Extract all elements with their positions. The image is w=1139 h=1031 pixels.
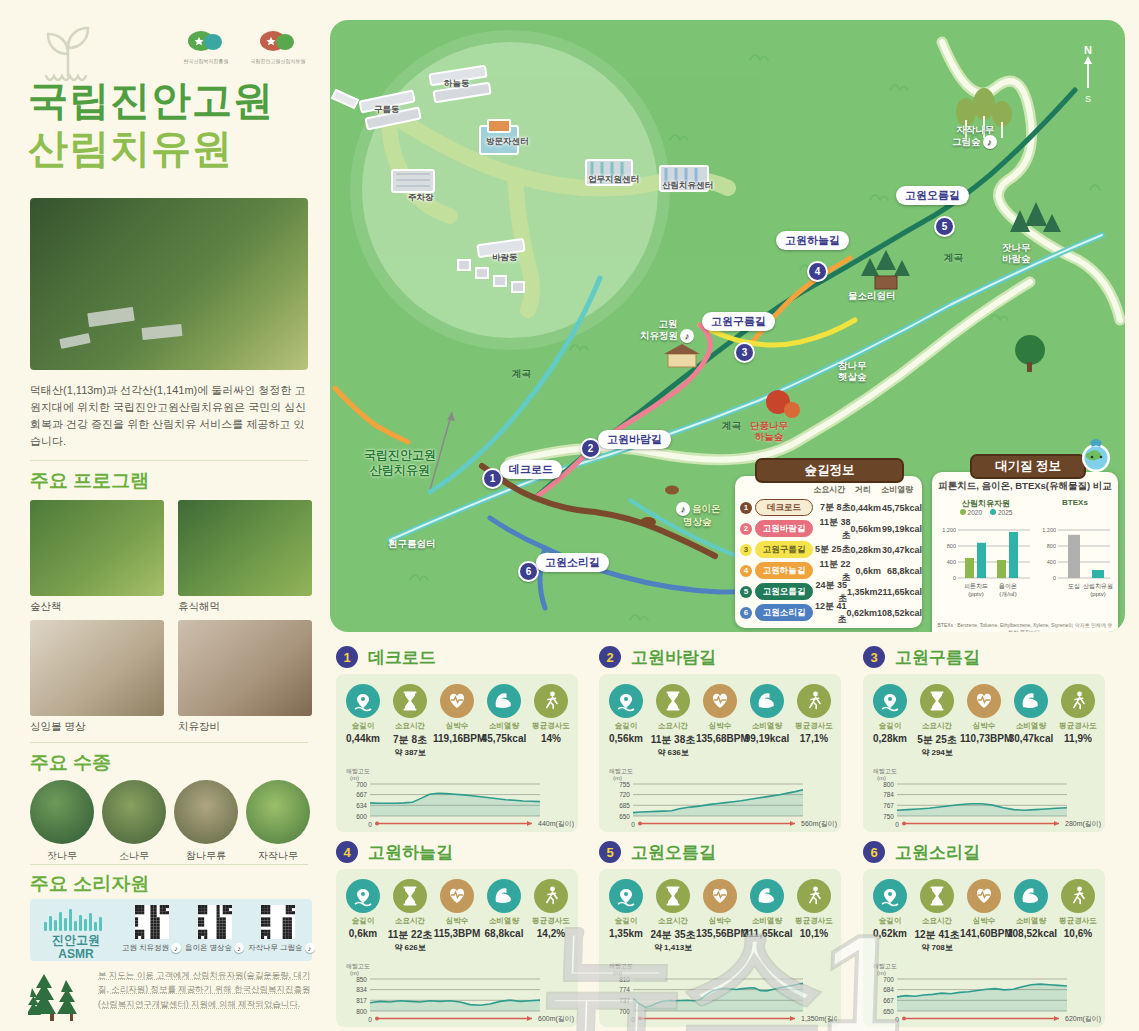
svg-text:700: 700 bbox=[356, 781, 367, 788]
slope-icon bbox=[797, 684, 831, 718]
stat-label: 심박수 bbox=[433, 916, 481, 926]
elevation-chart: 해발고도(m)7006676346000440m(길이) bbox=[340, 764, 574, 830]
trail-length-icon bbox=[873, 684, 907, 718]
poster-title-line2: 산림치유원 bbox=[28, 126, 233, 170]
col-kcal: 소비열량 bbox=[878, 484, 916, 495]
stat-trail-length: 숲길이0,44km bbox=[339, 684, 387, 744]
stat-duration: 소요시간11분 22초약 626보 bbox=[386, 879, 434, 953]
trail-length-icon bbox=[346, 879, 380, 913]
svg-text:피톤치드: 피톤치드 bbox=[964, 583, 988, 589]
stat-heart-rate: 심박수115,3BPM bbox=[433, 879, 481, 939]
steps-value: 약 626보 bbox=[386, 942, 434, 953]
compass: N S bbox=[1084, 44, 1092, 104]
svg-text:784: 784 bbox=[883, 791, 894, 798]
svg-text:800: 800 bbox=[947, 543, 956, 549]
aq-forest-title: 산림치유자원 bbox=[938, 498, 1034, 509]
row-number-badge: 6 bbox=[740, 607, 752, 619]
time-value: 7분 8초 bbox=[813, 501, 850, 514]
map-place-label: 구름동 bbox=[374, 104, 400, 114]
svg-text:해발고도: 해발고도 bbox=[609, 768, 633, 774]
place-text: 물소리쉼터 bbox=[848, 290, 896, 301]
stat-label: 숲길이 bbox=[866, 721, 914, 731]
stat-label: 소요시간 bbox=[386, 916, 434, 926]
svg-text:해발고도: 해발고도 bbox=[346, 963, 370, 969]
species-label: 참나무류 bbox=[174, 849, 238, 863]
heart-rate-icon bbox=[703, 684, 737, 718]
air-quality-footnote: BTEXs : Benzene, Toluene, Ethylbenzene, … bbox=[937, 622, 1113, 632]
stat-slope: 평균경사도10,6% bbox=[1054, 879, 1102, 939]
legend-item: 2020 bbox=[960, 509, 982, 516]
logo-kofowi: 한국산림복지진흥원 bbox=[175, 28, 237, 64]
sound-bars-icon bbox=[44, 907, 108, 933]
slope-icon bbox=[1061, 684, 1095, 718]
stat-trail-length: 숲길이0,28km bbox=[866, 684, 914, 744]
footer-note: 본 지도는 이용 고객에게 산림치유자원(숲길운동량, 대기질, 소리자원) 정… bbox=[98, 968, 312, 1011]
divider bbox=[30, 742, 308, 743]
air-quality-subtitle: 피톤치드, 음이온, BTEXs(유해물질) 비교 bbox=[932, 480, 1118, 493]
steps-value: 약 636보 bbox=[649, 747, 697, 758]
logo-kofowi-label: 한국산림복지진흥원 bbox=[175, 58, 237, 64]
qr-item: 자작나무 그림숲♪ bbox=[248, 905, 308, 953]
trail-pill-4: 고원하늘길 bbox=[776, 231, 849, 250]
trail-info-panel: 소요시간 거리 소비열량 1데크로드7분 8초0,44km45,75kcal2고… bbox=[735, 476, 922, 628]
svg-text:634: 634 bbox=[356, 802, 367, 809]
divider bbox=[30, 460, 308, 461]
qr-label: 음이온 명상숲♪ bbox=[185, 943, 245, 953]
program-item: 숲산책 bbox=[30, 500, 164, 614]
card-panel: 숲길이0,56km소요시간11분 38초약 636보심박수135,68BPM소비… bbox=[599, 674, 841, 832]
svg-text:(pptv): (pptv) bbox=[1090, 591, 1105, 597]
stat-value: 110,73BPM bbox=[960, 733, 1008, 744]
stat-label: 평균경사도 bbox=[527, 721, 575, 731]
music-note-icon: ♪ bbox=[983, 135, 997, 149]
card-number-badge: 6 bbox=[863, 841, 885, 863]
stat-value: 135,68BPM bbox=[696, 733, 744, 744]
trail-pill-5: 고원오름길 bbox=[896, 186, 969, 205]
map-place-label: 하늘동 bbox=[444, 78, 470, 88]
stat-label: 소비열량 bbox=[1007, 916, 1055, 926]
map-place-label: 자작나무 그림숲♪ bbox=[952, 124, 999, 149]
map-place-label: 참나무 햇살숲 bbox=[838, 360, 867, 383]
svg-text:0: 0 bbox=[631, 821, 635, 828]
card-title: 고원소리길 bbox=[895, 841, 980, 864]
species-label: 잣나무 bbox=[30, 849, 94, 863]
stat-value: 45,75kcal bbox=[480, 733, 528, 744]
stat-label: 숲길이 bbox=[339, 721, 387, 731]
card-panel: 숲길이0,44km소요시간7분 8초약 387보심박수119,16BPM소비열량… bbox=[336, 674, 578, 832]
program-photo bbox=[178, 500, 312, 596]
species-row: 잣나무소나무참나무류자작나무 bbox=[30, 780, 312, 863]
music-note-icon: ♪ bbox=[676, 502, 690, 516]
stat-value: 68,8kcal bbox=[480, 928, 528, 939]
program-item: 치유장비 bbox=[178, 620, 312, 734]
programs-heading: 주요 프로그램 bbox=[30, 468, 149, 494]
trail-pill-6: 고원소리길 bbox=[536, 553, 609, 572]
place-text: 단풍나무 하늘숲 bbox=[750, 420, 788, 442]
svg-text:음이온: 음이온 bbox=[999, 583, 1017, 589]
program-label: 싱잉볼 명상 bbox=[30, 720, 164, 734]
stat-value: 0,6km bbox=[339, 928, 387, 939]
stat-value: 7분 8초 bbox=[386, 733, 434, 747]
svg-text:750: 750 bbox=[883, 813, 894, 820]
svg-text:440m(길이): 440m(길이) bbox=[538, 820, 574, 828]
asmr-label: 진안고원ASMR bbox=[38, 933, 114, 962]
stat-value: 30,47kcal bbox=[1007, 733, 1055, 744]
row-number-badge: 4 bbox=[740, 565, 752, 577]
place-text: 계곡 bbox=[944, 252, 963, 263]
card-title: 데크로드 bbox=[368, 646, 436, 669]
stat-calorie: 소비열량45,75kcal bbox=[480, 684, 528, 744]
trail-map: N S 1데크로드2고원바람길3고원구름길4고원하늘길5고원오름길6고원소리길계… bbox=[330, 20, 1125, 632]
stat-slope: 평균경사도17,1% bbox=[790, 684, 838, 744]
qr-code bbox=[261, 905, 295, 939]
card-title: 고원오름길 bbox=[631, 841, 716, 864]
program-item: 휴식해먹 bbox=[178, 500, 312, 614]
distance-value: 0,6km bbox=[851, 566, 881, 576]
asmr-box: 진안고원ASMR 고원 치유정원♪음이온 명상숲♪자작나무 그림숲♪ bbox=[30, 899, 312, 961]
place-text: 잣나무 바람숲 bbox=[1002, 242, 1031, 264]
site-label: 국립진안고원산림치유원 bbox=[358, 448, 442, 478]
svg-text:0: 0 bbox=[895, 821, 899, 828]
qr-code bbox=[135, 905, 169, 939]
svg-text:667: 667 bbox=[356, 791, 367, 798]
music-note-icon: ♪ bbox=[305, 943, 315, 953]
duration-icon bbox=[920, 684, 954, 718]
map-place-label: 흰구름쉼터 bbox=[388, 538, 436, 549]
logo-center-label: 국립진안고원산림치유원 bbox=[245, 58, 311, 64]
stat-duration: 소요시간5분 25초약 294보 bbox=[913, 684, 961, 758]
distance-value: 0,28km bbox=[850, 545, 881, 555]
elevation-chart: 해발고도(m)7006846676500620m(길이) bbox=[867, 959, 1101, 1025]
svg-text:817: 817 bbox=[356, 997, 367, 1004]
map-place-label: 고원 치유정원♪ bbox=[640, 318, 696, 343]
trail-info-row: 6고원소리길12분 41초0,62km108,52kcal bbox=[735, 602, 922, 623]
heart-rate-icon bbox=[440, 879, 474, 913]
program-item: 싱잉볼 명상 bbox=[30, 620, 164, 734]
qr-code bbox=[198, 905, 232, 939]
calorie-icon bbox=[487, 684, 521, 718]
place-text: 고원 치유정원 bbox=[640, 318, 678, 341]
air-quality-panel: 피톤치드, 음이온, BTEXs(유해물질) 비교 산림치유자원 2020202… bbox=[932, 472, 1118, 632]
trail-name-badge: 고원소리길 bbox=[755, 604, 813, 621]
place-text: 업무지원센터 bbox=[588, 174, 639, 184]
stat-calorie: 소비열량108,52kcal bbox=[1007, 879, 1055, 939]
stat-calorie: 소비열량30,47kcal bbox=[1007, 684, 1055, 744]
svg-text:(pptv): (pptv) bbox=[968, 591, 983, 597]
stat-value: 0,28km bbox=[866, 733, 914, 744]
map-place-label: 계곡 bbox=[512, 368, 531, 379]
qr-item: 고원 치유정원♪ bbox=[122, 905, 182, 953]
program-label: 숲산책 bbox=[30, 600, 164, 614]
poster: 한국산림복지진흥원 국립진안고원산림치유원 국립진안고원 산림치유원 덕태산(1… bbox=[0, 0, 1139, 1031]
card-title: 고원구름길 bbox=[895, 646, 980, 669]
music-note-icon: ♪ bbox=[171, 943, 181, 953]
place-text: 바람동 bbox=[492, 252, 518, 262]
program-photo bbox=[178, 620, 312, 716]
calorie-icon bbox=[750, 684, 784, 718]
stat-value: 119,16BPM bbox=[433, 733, 481, 744]
species-photo bbox=[246, 780, 310, 844]
stat-value: 141,60BPM bbox=[960, 928, 1008, 939]
svg-text:600: 600 bbox=[356, 813, 367, 820]
heart-rate-icon bbox=[967, 879, 1001, 913]
svg-text:산림치유원: 산림치유원 bbox=[1083, 583, 1113, 589]
stat-label: 심박수 bbox=[696, 721, 744, 731]
trail-info-title: 숲길정보 bbox=[755, 458, 904, 483]
stat-value: 0,44km bbox=[339, 733, 387, 744]
trail-pill-3: 고원구름길 bbox=[702, 312, 775, 331]
music-note-icon: ♪ bbox=[680, 329, 694, 343]
calorie-value: 45,75kcal bbox=[881, 503, 922, 513]
svg-text:도심: 도심 bbox=[1068, 583, 1080, 589]
map-place-label: 단풍나무 하늘숲 bbox=[750, 420, 788, 443]
trail-pill-2: 고원바람길 bbox=[598, 430, 671, 449]
species-item: 참나무류 bbox=[174, 780, 238, 863]
logo-kofowi-icon bbox=[175, 28, 237, 54]
species-photo bbox=[30, 780, 94, 844]
time-value: 5분 25초 bbox=[813, 543, 850, 556]
poster-title-line1: 국립진안고원 bbox=[28, 78, 274, 122]
svg-text:1,200: 1,200 bbox=[942, 527, 956, 533]
music-note-icon: ♪ bbox=[234, 943, 244, 953]
slope-icon bbox=[1061, 879, 1095, 913]
svg-text:N: N bbox=[1084, 44, 1092, 56]
svg-text:755: 755 bbox=[619, 781, 630, 788]
place-text: 방문자센터 bbox=[486, 136, 529, 146]
intro-text: 덕태산(1,113m)과 선각산(1,141m)에 둘러싸인 청정한 고원지대에… bbox=[30, 382, 312, 450]
row-number-badge: 2 bbox=[740, 523, 752, 535]
card-title: 고원바람길 bbox=[631, 646, 716, 669]
col-dist: 거리 bbox=[847, 484, 877, 495]
svg-text:800: 800 bbox=[1047, 543, 1056, 549]
duration-icon bbox=[920, 879, 954, 913]
place-text: 하늘동 bbox=[444, 78, 470, 88]
elevation-chart: 해발고도(m)8007847677500280m(길이) bbox=[867, 764, 1101, 830]
steps-value: 약 708보 bbox=[913, 942, 961, 953]
stat-duration: 소요시간7분 8초약 387보 bbox=[386, 684, 434, 758]
stat-label: 소요시간 bbox=[649, 721, 697, 731]
stat-label: 숲길이 bbox=[602, 721, 650, 731]
card-number-badge: 4 bbox=[336, 841, 358, 863]
distance-value: 0,62km bbox=[846, 608, 877, 618]
map-place-label: 업무지원센터 bbox=[588, 174, 639, 184]
time-value: 12분 41초 bbox=[813, 600, 846, 626]
svg-text:280m(길이): 280m(길이) bbox=[1065, 820, 1101, 828]
stat-value: 10,6% bbox=[1054, 928, 1102, 939]
trail-marker-5: 5 bbox=[934, 216, 955, 237]
program-photo bbox=[30, 500, 164, 596]
card-number-badge: 1 bbox=[336, 646, 358, 668]
sounds-heading: 주요 소리자원 bbox=[30, 871, 149, 897]
duration-icon bbox=[656, 684, 690, 718]
svg-text:800: 800 bbox=[356, 1008, 367, 1015]
divider bbox=[30, 864, 308, 865]
aq-legend: 20202025 bbox=[938, 509, 1034, 516]
stat-value: 108,52kcal bbox=[1007, 928, 1055, 939]
duration-icon bbox=[393, 684, 427, 718]
svg-text:S: S bbox=[1085, 94, 1091, 104]
stat-label: 소요시간 bbox=[913, 916, 961, 926]
legend-item: 2025 bbox=[990, 509, 1012, 516]
aq-btex-title: BTEXs bbox=[1036, 498, 1114, 507]
stat-label: 평균경사도 bbox=[790, 721, 838, 731]
stat-slope: 평균경사도14% bbox=[527, 684, 575, 744]
card-number-badge: 2 bbox=[599, 646, 621, 668]
trail-length-icon bbox=[609, 684, 643, 718]
stat-value: 12분 41초 bbox=[913, 928, 961, 942]
trail-info-header-row: 소요시간 거리 소비열량 bbox=[735, 484, 916, 495]
svg-text:0: 0 bbox=[1053, 575, 1056, 581]
stat-label: 평균경사도 bbox=[1054, 916, 1102, 926]
row-number-badge: 3 bbox=[740, 544, 752, 556]
stat-label: 숲길이 bbox=[339, 916, 387, 926]
calorie-value: 30,47kcal bbox=[881, 545, 922, 555]
distance-value: 1,35km bbox=[847, 587, 878, 597]
aq-chart-forest: 산림치유자원 20202025 1,2008004000피톤치드(pptv)음이… bbox=[938, 498, 1034, 616]
svg-text:400: 400 bbox=[947, 559, 956, 565]
map-place-label: 방문자센터 bbox=[486, 136, 529, 146]
stat-label: 소요시간 bbox=[913, 721, 961, 731]
aq-chart-btex: BTEXs 1,2008004000도심산림치유원(pptv) bbox=[1036, 498, 1114, 616]
svg-text:834: 834 bbox=[356, 986, 367, 993]
calorie-value: 108,52kcal bbox=[877, 608, 922, 618]
earth-mascot-icon bbox=[1076, 436, 1116, 480]
svg-text:해발고도: 해발고도 bbox=[346, 768, 370, 774]
stat-label: 심박수 bbox=[960, 916, 1008, 926]
time-value: 11분 38초 bbox=[813, 516, 850, 542]
stat-label: 평균경사도 bbox=[1054, 721, 1102, 731]
qr-row: 고원 치유정원♪음이온 명상숲♪자작나무 그림숲♪ bbox=[122, 905, 308, 953]
stat-heart-rate: 심박수119,16BPM bbox=[433, 684, 481, 744]
svg-text:560m(길이): 560m(길이) bbox=[801, 820, 837, 828]
place-text: 계곡 bbox=[722, 420, 741, 431]
svg-text:(개/㎖): (개/㎖) bbox=[999, 591, 1017, 597]
elevation-chart: 해발고도(m)7557206856500560m(길이) bbox=[603, 764, 837, 830]
trail-name-badge: 고원하늘길 bbox=[755, 562, 813, 579]
species-item: 소나무 bbox=[102, 780, 166, 863]
stat-value: 14% bbox=[527, 733, 575, 744]
place-text: 흰구름쉼터 bbox=[388, 538, 436, 549]
svg-text:0: 0 bbox=[953, 575, 956, 581]
map-place-label: 계곡 bbox=[722, 420, 741, 431]
steps-value: 약 387보 bbox=[386, 747, 434, 758]
stat-slope: 평균경사도11,9% bbox=[1054, 684, 1102, 744]
heart-rate-icon bbox=[440, 684, 474, 718]
place-text: 계곡 bbox=[512, 368, 531, 379]
steps-value: 약 294보 bbox=[913, 747, 961, 758]
svg-text:400: 400 bbox=[1047, 559, 1056, 565]
trail-name-badge: 고원바람길 bbox=[755, 520, 813, 537]
aq-forest-chart: 1,2008004000피톤치드(pptv)음이온(개/㎖) bbox=[938, 516, 1034, 612]
svg-text:767: 767 bbox=[883, 802, 894, 809]
species-label: 소나무 bbox=[102, 849, 166, 863]
program-photo bbox=[30, 620, 164, 716]
stat-value: 11분 22초 bbox=[386, 928, 434, 942]
calorie-icon bbox=[1014, 879, 1048, 913]
stat-value: 11,9% bbox=[1054, 733, 1102, 744]
aerial-photo bbox=[30, 198, 308, 370]
heart-rate-icon bbox=[967, 684, 1001, 718]
map-place-label: 물소리쉼터 bbox=[848, 290, 896, 301]
stat-value: 115,3BPM bbox=[433, 928, 481, 939]
duration-icon bbox=[393, 879, 427, 913]
species-label: 자작나무 bbox=[246, 849, 310, 863]
trail-path-sky2 bbox=[335, 388, 408, 442]
qr-label: 자작나무 그림숲♪ bbox=[248, 943, 308, 953]
map-place-label: 잣나무 바람숲 bbox=[1002, 242, 1031, 265]
species-heading: 주요 수종 bbox=[30, 750, 111, 776]
trail-marker-3: 3 bbox=[734, 342, 755, 363]
stat-value: 5분 25초 bbox=[913, 733, 961, 747]
svg-text:해발고도: 해발고도 bbox=[873, 768, 897, 774]
aq-btex-chart: 1,2008004000도심산림치유원(pptv) bbox=[1036, 516, 1114, 612]
stat-duration: 소요시간12분 41초약 708보 bbox=[913, 879, 961, 953]
place-text: 산림치유센터 bbox=[662, 180, 713, 190]
air-quality-title: 대기질 정보 bbox=[970, 454, 1086, 479]
svg-text:0: 0 bbox=[368, 1016, 372, 1023]
trail-marker-4: 4 bbox=[807, 261, 828, 282]
svg-text:0: 0 bbox=[368, 821, 372, 828]
trail-info-row: 2고원바람길11분 38초0,56km99,19kcal bbox=[735, 518, 922, 539]
card-panel: 숲길이0,28km소요시간5분 25초약 294보심박수110,73BPM소비열… bbox=[863, 674, 1105, 832]
stat-trail-length: 숲길이0,6km bbox=[339, 879, 387, 939]
stat-label: 소비열량 bbox=[743, 721, 791, 731]
stat-value: 17,1% bbox=[790, 733, 838, 744]
trail-name-badge: 고원오름길 bbox=[755, 583, 813, 600]
trail-name-badge: 데크로드 bbox=[755, 499, 813, 516]
distance-value: 0,44km bbox=[850, 503, 881, 513]
stat-heart-rate: 심박수141,60BPM bbox=[960, 879, 1008, 939]
qr-label: 고원 치유정원♪ bbox=[122, 943, 182, 953]
svg-text:1,200: 1,200 bbox=[1042, 527, 1056, 533]
svg-text:850: 850 bbox=[356, 976, 367, 983]
calorie-value: 68,8kcal bbox=[881, 566, 922, 576]
species-item: 잣나무 bbox=[30, 780, 94, 863]
stat-label: 심박수 bbox=[433, 721, 481, 731]
species-photo bbox=[174, 780, 238, 844]
stat-label: 소요시간 bbox=[386, 721, 434, 731]
card-number-badge: 5 bbox=[599, 841, 621, 863]
stat-trail-length: 숲길이0,56km bbox=[602, 684, 650, 744]
row-number-badge: 1 bbox=[740, 502, 752, 514]
map-place-label: 주차장 bbox=[408, 192, 434, 202]
place-text: 구름동 bbox=[374, 104, 400, 114]
stat-heart-rate: 심박수110,73BPM bbox=[960, 684, 1008, 744]
distance-value: 0,56km bbox=[850, 524, 881, 534]
program-label: 휴식해먹 bbox=[178, 600, 312, 614]
stat-calorie: 소비열량68,8kcal bbox=[480, 879, 528, 939]
qr-item: 음이온 명상숲♪ bbox=[185, 905, 245, 953]
news1-watermark: 뉴스1 bbox=[537, 890, 903, 1031]
logo-center-icon bbox=[245, 28, 311, 54]
svg-text:720: 720 bbox=[619, 791, 630, 798]
calorie-icon bbox=[487, 879, 521, 913]
stat-value: 0,56km bbox=[602, 733, 650, 744]
card-title: 고원하늘길 bbox=[368, 841, 453, 864]
stat-heart-rate: 심박수135,68BPM bbox=[696, 684, 744, 744]
card-number-badge: 3 bbox=[863, 646, 885, 668]
species-item: 자작나무 bbox=[246, 780, 310, 863]
place-text: 주차장 bbox=[408, 192, 434, 202]
species-photo bbox=[102, 780, 166, 844]
stat-label: 심박수 bbox=[960, 721, 1008, 731]
stat-value: 99,19kcal bbox=[743, 733, 791, 744]
slope-icon bbox=[534, 684, 568, 718]
program-label: 치유장비 bbox=[178, 720, 312, 734]
pine-trees-icon bbox=[28, 970, 90, 1022]
trail-name-badge: 고원구름길 bbox=[755, 541, 813, 558]
calorie-value: 99,19kcal bbox=[881, 524, 922, 534]
